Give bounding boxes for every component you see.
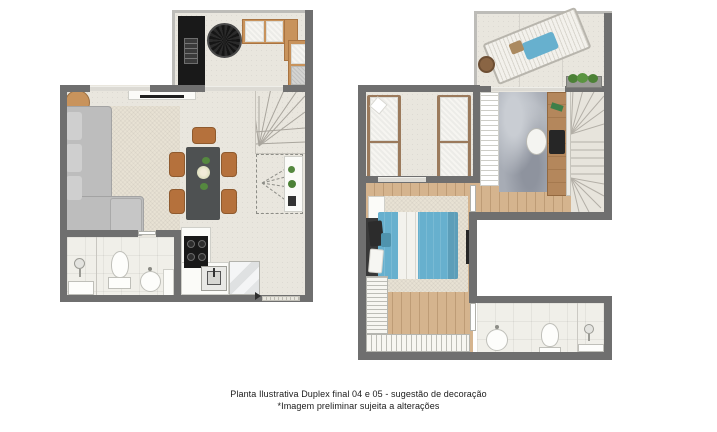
burner [198,240,206,248]
wall [60,230,138,237]
lounger-cushion [370,143,398,177]
door-leaf [138,231,156,235]
daybed-cushion [521,31,559,60]
door-leaf [470,185,476,212]
wall [358,85,366,352]
window [90,86,150,91]
wall [150,85,205,92]
pillow [381,233,391,247]
wall [60,85,67,302]
tv [140,95,184,98]
burner [187,240,195,248]
wall [305,10,313,302]
wall [358,352,612,360]
faucet [495,325,499,329]
ottoman [110,198,142,234]
wall [174,230,181,302]
pillow [368,248,384,273]
plant [577,73,588,83]
plant [288,166,295,173]
terrace-rail [474,11,612,14]
centerpiece-plant [200,183,208,190]
balcony-rail [172,10,313,13]
wall [604,296,612,360]
bistro-table [207,23,242,58]
dining-chair [169,152,185,177]
bench-cushion [245,21,264,42]
shower-head [74,258,85,269]
burner [187,253,195,261]
dining-chair [192,127,216,144]
plant [288,180,296,188]
wardrobe [366,334,470,352]
sliding-door [205,86,283,91]
wall [358,85,473,92]
wall [604,13,612,212]
balcony-rail [172,10,175,90]
centerpiece-plant [202,157,210,164]
bed-edge-shadow [448,212,458,279]
shower-head [584,324,594,334]
sink-basin [140,271,161,292]
sofa-cushion [66,176,82,200]
caption-line-1: Planta Ilustrativa Duplex final 04 e 05 … [0,388,717,400]
lounger-cushion [440,143,468,177]
plant [588,74,598,83]
floorplan-image: Planta Ilustrativa Duplex final 04 e 05 … [0,0,717,432]
wall [473,85,480,183]
faucet [148,267,152,271]
dining-chair [169,189,185,214]
shower-arm [79,269,81,277]
dining-chair [221,189,237,214]
door-leaf [470,303,476,331]
shower-ledge [578,344,604,352]
duvet-fold [398,212,418,279]
terrace-rail [474,11,477,90]
lounger-cushion [440,97,468,141]
sink-faucet [213,268,215,277]
sofa-cushion [66,112,82,140]
grill [184,38,198,64]
stair-edge [255,88,256,154]
refrigerator [229,261,260,295]
centerpiece-flowers [197,166,210,179]
staircase-upper [571,90,604,212]
office-chair [526,128,547,155]
entrance-arrow [255,292,261,300]
laptop [549,130,565,154]
caption: Planta Ilustrativa Duplex final 04 e 05 … [0,388,717,412]
bench-cushion [266,21,283,42]
staircase-lower [255,88,305,154]
toilet-tank [108,277,131,289]
toilet-bowl [111,251,129,278]
dining-chair [221,152,237,177]
bedroom-glass-door [378,177,426,182]
shelf-item [288,196,296,206]
side-table-round [478,56,495,73]
shower-arm [588,334,590,341]
caption-line-2: *Imagem preliminar sujeita a alterações [0,400,717,412]
toilet-bowl [541,323,559,347]
wardrobe [366,276,388,334]
wall [469,212,477,303]
shower-tray [68,281,94,295]
sofa-cushion [66,144,82,172]
burner [198,253,206,261]
vanity [163,269,174,296]
sink-basin [486,329,508,351]
entrance-mat [262,296,300,301]
shower-screen [96,237,97,295]
wall [473,212,612,220]
wall [469,296,612,303]
sliding-door [491,87,565,91]
pergola-louver [480,92,499,186]
